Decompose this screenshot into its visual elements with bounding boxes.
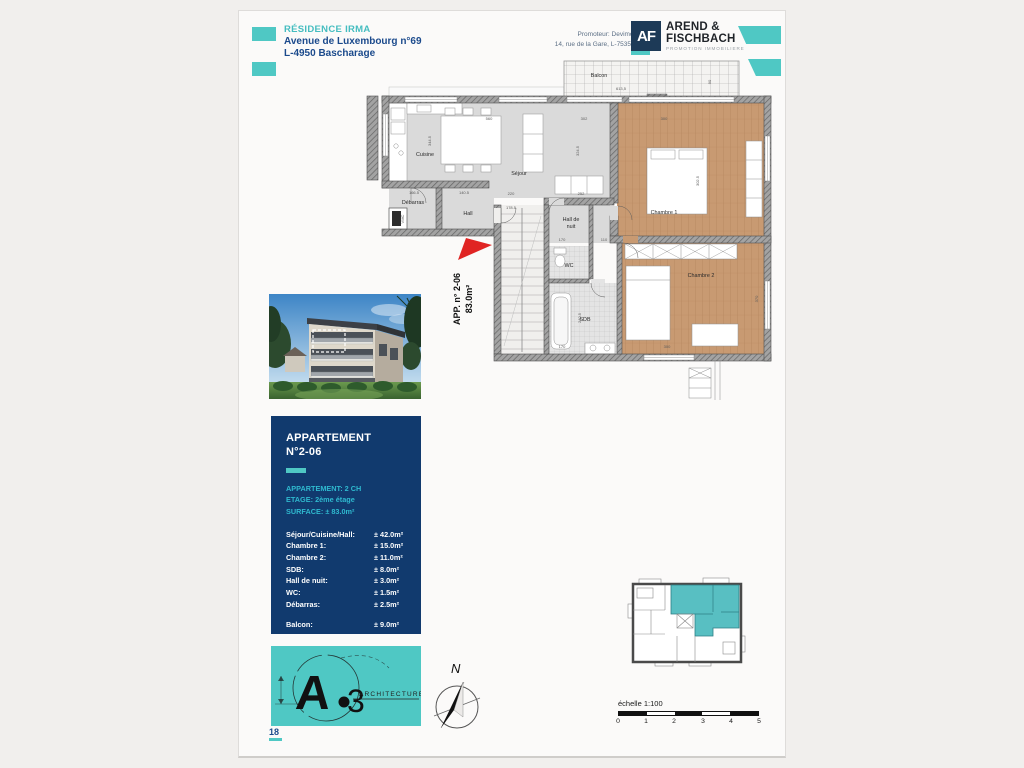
svg-text:140.5: 140.5 [459, 190, 470, 195]
info-title-line1: APPARTEMENT [286, 431, 411, 445]
dim-balcon: 613,5 [616, 86, 627, 91]
svg-text:252: 252 [578, 191, 585, 196]
brand-subtitle: PROMOTION IMMOBILIERE [666, 47, 745, 52]
info-room-list: Séjour/Cuisine/Hall:± 42.0m² Chambre 1:±… [286, 529, 411, 611]
project-name: RÉSIDENCE IRMA [284, 24, 422, 36]
scale-label: échelle 1:100 [618, 699, 663, 708]
room-area-row: WC:± 1.5m² [286, 587, 411, 599]
facade-sill [389, 87, 564, 96]
dim-balcon-depth: 90 [707, 79, 712, 84]
svg-text:302.5: 302.5 [695, 175, 700, 186]
room-label-debarras: Débarras [402, 200, 424, 206]
built-in-closets [625, 244, 737, 259]
room-label-cuisine: Cuisine [416, 152, 434, 158]
scale-bar [618, 711, 759, 716]
info-teal-divider [286, 468, 306, 473]
apartment-number-label: APP. n° 2-06 [452, 273, 462, 325]
svg-text:302: 302 [581, 116, 588, 121]
a3-digit-3: 3 [347, 683, 365, 719]
a3-wordmark: ARCHITECTURE [359, 691, 421, 698]
arend-fischbach-wordmark: AREND & FISCHBACH PROMOTION IMMOBILIERE [666, 22, 745, 52]
arend-fischbach-logo-monogram: AF [631, 21, 661, 51]
svg-text:170: 170 [559, 237, 566, 242]
vmc-duct: VMC [389, 208, 407, 229]
a3-architecture-logo-box: A 3 ARCHITECTURE [271, 646, 421, 726]
info-meta-surface: SURFACE: ± 83.0m² [286, 506, 411, 518]
svg-text:170: 170 [559, 344, 566, 349]
svg-text:220: 220 [508, 191, 515, 196]
exterior-ladder [689, 361, 720, 400]
arend-fischbach-logo-teal-strip [631, 51, 650, 55]
brand-line2: FISCHBACH [666, 34, 745, 46]
floor-plan-drawing: Balcon 613,5 90 [359, 56, 783, 404]
svg-text:178.5: 178.5 [506, 205, 517, 210]
apartment-marker-triangle [458, 238, 492, 260]
svg-text:344.5: 344.5 [427, 135, 432, 146]
info-title-line2: N°2-06 [286, 445, 411, 459]
project-address-line1: Avenue de Luxembourg n°69 [284, 36, 422, 49]
room-area-row: SDB:± 8.0m² [286, 564, 411, 576]
svg-text:300: 300 [661, 116, 668, 121]
building-rendering-photo [269, 294, 421, 399]
svg-text:370: 370 [754, 295, 759, 302]
svg-text:240.5: 240.5 [577, 312, 582, 323]
room-label-sejour: Séjour [511, 171, 527, 177]
room-label-vmc: VMC [400, 214, 405, 223]
room-label-wc: WC [565, 263, 574, 269]
svg-text:324.5: 324.5 [575, 145, 580, 156]
svg-text:560: 560 [486, 116, 493, 121]
info-meta: APPARTEMENT: 2 CH ETAGE: 2ème étage SURF… [286, 483, 411, 518]
north-compass: N [429, 659, 485, 737]
header-teal-bar-top [252, 27, 276, 41]
room-label-chambre2: Chambre 2 [688, 273, 715, 279]
room-label-hall-de-nuit-1: Hall de [563, 217, 580, 223]
room-area-row: Séjour/Cuisine/Hall:± 42.0m² [286, 529, 411, 541]
apartment-info-box: APPARTEMENT N°2-06 APPARTEMENT: 2 CH ETA… [271, 416, 421, 634]
scale-ticks: 0 1 2 3 4 5 [618, 718, 759, 728]
info-meta-floor: ETAGE: 2ème étage [286, 494, 411, 506]
room-area-row: Hall de nuit:± 3.0m² [286, 575, 411, 587]
balcony-area-row: Balcon:± 9.0m² [286, 619, 411, 631]
svg-text:110: 110 [601, 237, 608, 242]
info-meta-type: APPARTEMENT: 2 CH [286, 483, 411, 495]
key-plan-thumbnail [625, 574, 749, 670]
page-number: 18 [269, 727, 279, 737]
room-area-row: Chambre 2:± 11.0m² [286, 552, 411, 564]
plan-sheet: RÉSIDENCE IRMA Avenue de Luxembourg n°69… [238, 10, 786, 758]
brand-line1: AREND & [666, 22, 745, 34]
a3-letter-a: A [294, 667, 332, 720]
a3-architecture-logo: A 3 ARCHITECTURE [271, 646, 421, 726]
room-area-row: Chambre 1:± 15.0m² [286, 540, 411, 552]
compass-north-label: N [451, 661, 461, 676]
svg-text:166.5: 166.5 [409, 190, 420, 195]
svg-text:300: 300 [664, 344, 671, 349]
header-teal-bar-bottom [252, 62, 276, 76]
room-label-hall-de-nuit-2: nuit [567, 224, 576, 230]
room-area-row: Débarras:± 2.5m² [286, 599, 411, 611]
room-label-hall: Hall [463, 211, 472, 217]
page-number-underline [269, 738, 282, 741]
apartment-area-label: 83.0m² [464, 285, 474, 314]
room-label-balcon: Balcon [591, 73, 607, 79]
room-label-chambre1: Chambre 1 [651, 210, 678, 216]
